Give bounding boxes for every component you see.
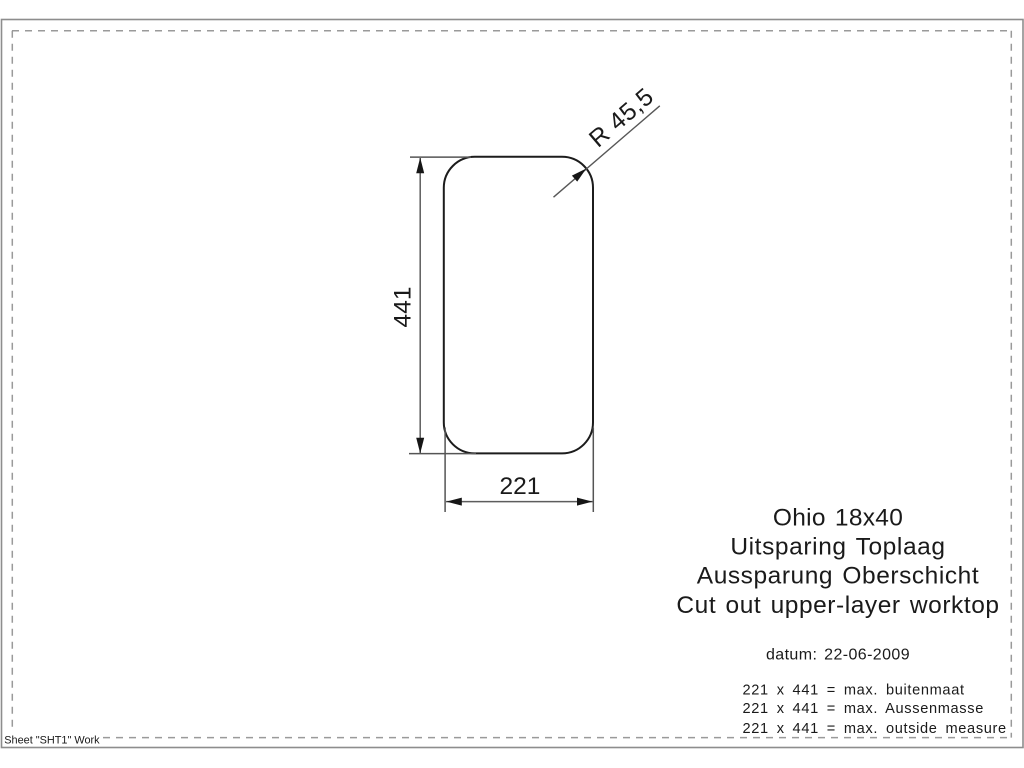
svg-text:Ohio 18x40: Ohio 18x40 — [773, 505, 903, 532]
svg-text:221 x 441 = max. outside measu: 221 x 441 = max. outside measure — [743, 721, 1007, 737]
svg-text:Sheet "SHT1" Work: Sheet "SHT1" Work — [4, 735, 100, 747]
svg-text:Cut out upper-layer worktop: Cut out upper-layer worktop — [676, 592, 999, 619]
svg-text:221 x 441 = max. buitenmaat: 221 x 441 = max. buitenmaat — [743, 682, 965, 698]
svg-text:441: 441 — [390, 287, 417, 328]
svg-text:221 x 441 = max. Aussenmasse: 221 x 441 = max. Aussenmasse — [743, 701, 984, 717]
svg-text:Uitsparing Toplaag: Uitsparing Toplaag — [730, 534, 945, 561]
svg-text:datum: 22-06-2009: datum: 22-06-2009 — [766, 647, 910, 664]
svg-text:221: 221 — [500, 473, 541, 500]
svg-text:Aussparung Oberschicht: Aussparung Oberschicht — [697, 563, 979, 590]
